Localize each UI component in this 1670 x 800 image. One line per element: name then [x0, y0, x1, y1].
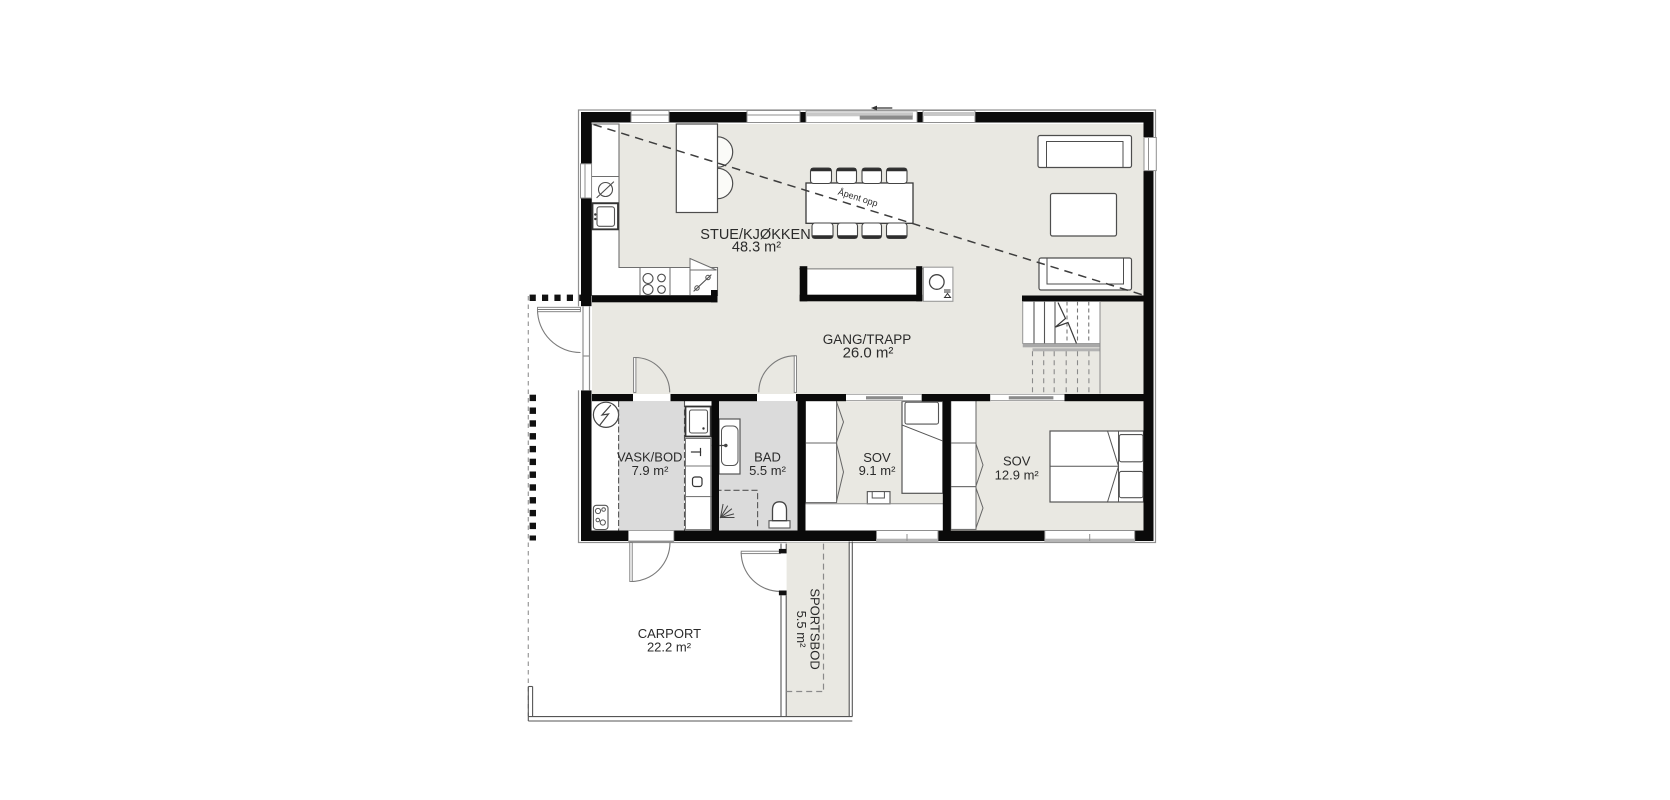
svg-text:9.1 m²: 9.1 m² — [859, 463, 897, 478]
svg-text:12.9 m²: 12.9 m² — [995, 467, 1040, 482]
svg-text:7.9 m²: 7.9 m² — [632, 463, 670, 478]
svg-text:48.3 m²: 48.3 m² — [732, 240, 781, 256]
svg-text:5.5 m²: 5.5 m² — [749, 463, 787, 478]
svg-text:SOV: SOV — [1003, 454, 1031, 469]
svg-text:5.5 m²: 5.5 m² — [794, 611, 809, 649]
svg-text:22.2 m²: 22.2 m² — [647, 639, 692, 654]
svg-text:26.0 m²: 26.0 m² — [843, 344, 894, 361]
